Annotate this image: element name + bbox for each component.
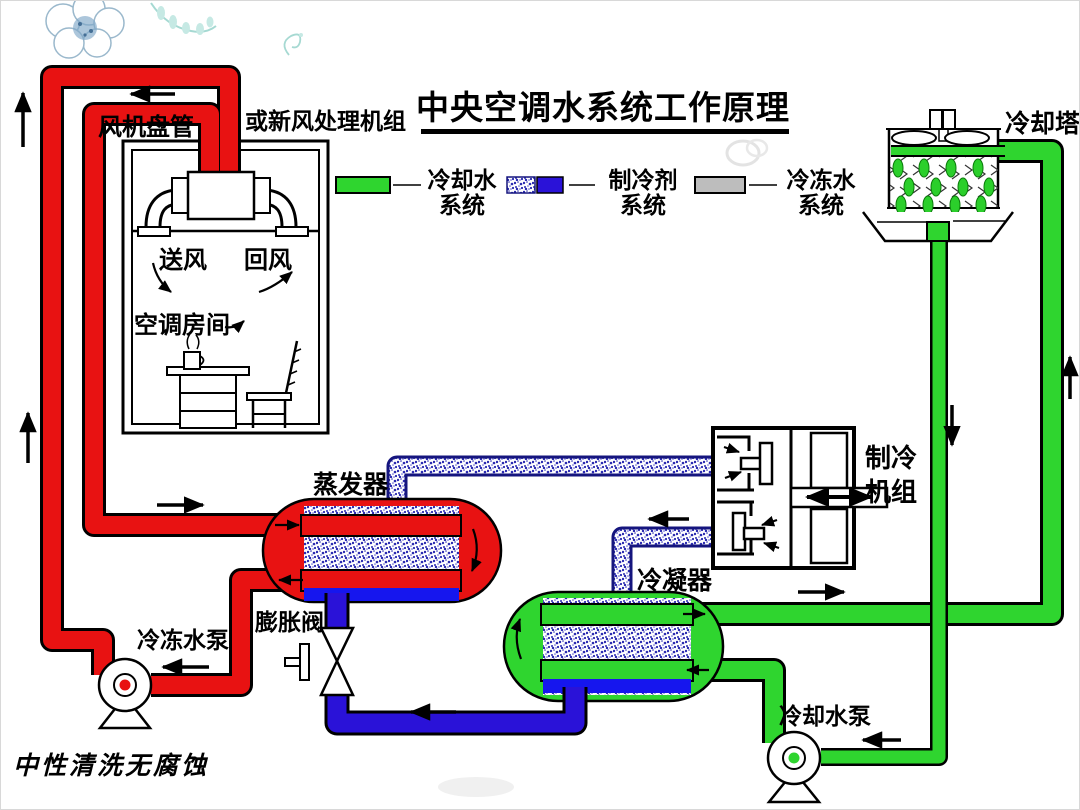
legend-refrigerant-line1: 制冷剂: [609, 167, 678, 194]
chair-seat: [247, 393, 291, 400]
valve-handle: [300, 644, 309, 680]
decorative-branch: [151, 3, 216, 35]
room-label: 空调房间: [134, 311, 230, 339]
legend-chilled-water-line2: 系统: [798, 192, 844, 219]
condenser-label: 冷凝器: [637, 566, 713, 595]
page-title: 中央空调水系统工作原理: [416, 88, 790, 127]
legend-refrigerant-blue-swatch: [537, 177, 563, 193]
legend-cooling-water-line2: 系统: [439, 192, 485, 219]
fan-motor-left: [930, 110, 942, 129]
title-underline: [421, 129, 789, 134]
legend-refrigerant-speckle-swatch: [507, 177, 535, 193]
chiller-label-line1: 制冷: [865, 443, 917, 474]
legend-chilled-water-swatch: [695, 177, 745, 193]
chiller-label-line2: 机组: [865, 477, 917, 508]
title-block: 中央空调水系统工作原理: [416, 88, 790, 134]
fan-coil-body: [188, 172, 254, 219]
ahu-label: 或新风处理机组: [245, 108, 406, 135]
cylinder-top: [811, 433, 847, 488]
chilled-pump-label: 冷冻水泵: [137, 627, 229, 654]
right-diffuser: [276, 227, 308, 236]
suction-valve-plate: [760, 443, 772, 484]
legend: 冷却水 系统 制冷剂 系统 冷冻水 系统: [336, 167, 857, 219]
diagram-svg: 风机盘管 或新风处理机组 送风 回风 空调房间 蒸发器 膨胀阀 冷冻水泵 冷凝器…: [1, 1, 1080, 810]
fan-blade-left: [892, 131, 936, 145]
evaporator-water-tube-bottom: [301, 570, 461, 591]
pipe-evaporator-to-compressor: [397, 466, 713, 503]
page: 风机盘管 或新风处理机组 送风 回风 空调房间 蒸发器 膨胀阀 冷冻水泵 冷凝器…: [0, 0, 1080, 810]
discharge-valve-stem: [744, 528, 764, 539]
suction-valve-stem: [741, 458, 761, 469]
left-diffuser: [138, 227, 170, 236]
cooling-water-pump: [768, 732, 820, 802]
decorative-curl: [284, 33, 303, 55]
expansion-valve: [285, 628, 353, 695]
legend-refrigerant-line2: 系统: [620, 192, 666, 219]
condenser-water-tube-bottom: [541, 660, 693, 681]
condenser-water-tube-top: [541, 604, 693, 625]
cooling-tower-label: 冷却塔: [1005, 109, 1080, 138]
chilled-water-pump: [99, 659, 151, 728]
fan-coil-label: 风机盘管: [98, 113, 194, 141]
table-pedestal: [180, 375, 236, 428]
legend-cooling-water-swatch: [336, 177, 390, 193]
footer-calligraphy: 中性清洗无腐蚀: [13, 751, 209, 780]
supply-air-label: 送风: [159, 246, 207, 274]
cylinder-bottom: [811, 509, 847, 563]
legend-chilled-water-line1: 冷冻水: [787, 167, 857, 194]
basin-outlet-block: [927, 222, 949, 241]
cup: [184, 352, 200, 369]
expansion-valve-label: 膨胀阀: [254, 610, 324, 636]
table-top: [167, 367, 249, 375]
fan-blade-right: [945, 131, 989, 145]
evaporator-water-tube-top: [301, 515, 461, 536]
legend-cooling-water-line1: 冷却水: [428, 167, 498, 194]
fan-coil-right-flange: [254, 178, 270, 213]
cooling-pump-label: 冷却水泵: [779, 703, 871, 730]
condenser: [504, 592, 723, 701]
decorative-flower: [46, 1, 124, 58]
evaporator-label: 蒸发器: [313, 470, 389, 499]
evaporator: [263, 499, 501, 602]
chiller-unit: [713, 428, 887, 568]
return-air-label: 回风: [244, 246, 292, 274]
fan-coil-left-flange: [172, 178, 188, 213]
fan-motor-right: [943, 110, 955, 129]
